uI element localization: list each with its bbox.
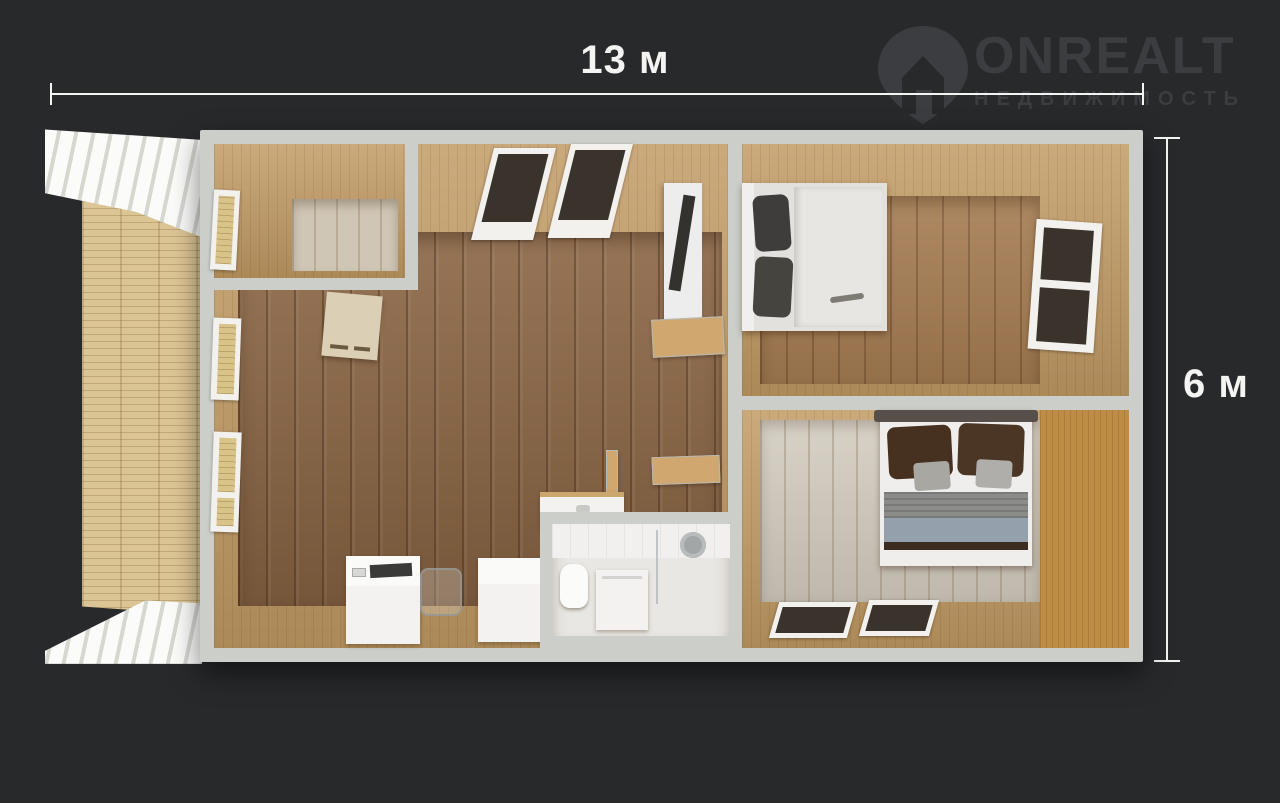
bedroom-bottom-right	[742, 410, 1129, 648]
shower-head-icon	[680, 532, 706, 558]
entry-room-floor	[292, 199, 398, 271]
dimension-width-tick-right	[1142, 83, 1144, 105]
entry-room-wall-right	[405, 144, 418, 290]
tv-panel	[664, 183, 702, 335]
double-bed	[880, 410, 1032, 566]
dimension-width-tick-left	[50, 83, 52, 105]
washing-machine	[596, 570, 648, 630]
bedroom-top-right	[742, 144, 1129, 396]
pillow-small	[975, 459, 1012, 489]
headboard	[874, 410, 1038, 422]
bathroom-floor	[552, 524, 730, 636]
blanket	[884, 518, 1028, 544]
entry-room-wall-bottom	[214, 278, 418, 290]
dimension-width-label: 13 м	[500, 38, 750, 83]
blanket	[884, 492, 1028, 518]
toilet	[560, 564, 588, 608]
wall-unit	[321, 292, 382, 361]
logo-pin-house-icon	[878, 26, 968, 124]
kitchen-counter	[346, 556, 420, 644]
bathroom	[540, 512, 742, 648]
wall-desk	[651, 316, 725, 358]
shower-glass	[656, 530, 658, 604]
onrealt-logo: ONREALT НЕДВИЖИМОСТЬ	[878, 24, 1238, 120]
window	[210, 432, 241, 533]
dimension-height-label: 6 м	[1183, 362, 1249, 407]
double-bed	[742, 183, 887, 331]
living-top-windows	[470, 148, 644, 244]
window	[859, 600, 939, 636]
dimension-width-line	[51, 93, 1143, 95]
entry-room	[214, 144, 405, 278]
ghost-chair	[420, 568, 462, 616]
window	[211, 318, 242, 401]
dimension-height-tick-bottom	[1154, 660, 1180, 662]
house-outline	[200, 130, 1143, 662]
dimension-height-tick-top	[1154, 137, 1180, 139]
window	[1028, 219, 1103, 353]
bedroom-bottom-wall-wood	[1040, 410, 1129, 648]
kitchen-counter	[478, 558, 548, 642]
window	[769, 602, 857, 638]
logo-subtitle: НЕДВИЖИМОСТЬ	[974, 88, 1246, 111]
window	[548, 144, 633, 238]
pillow-small	[913, 461, 951, 491]
cooktop-icon	[370, 563, 413, 578]
pillow	[752, 194, 792, 252]
window	[210, 189, 240, 270]
sink-icon	[352, 568, 366, 577]
terrace-deck	[82, 188, 200, 615]
dimension-height-line	[1166, 138, 1168, 661]
pillow	[752, 256, 793, 318]
wall-shelf	[652, 455, 721, 485]
tv-icon	[669, 195, 696, 292]
logo-title: ONREALT	[974, 30, 1246, 82]
floorplan-canvas: ONREALT НЕДВИЖИМОСТЬ 13 м 6 м	[0, 0, 1280, 803]
